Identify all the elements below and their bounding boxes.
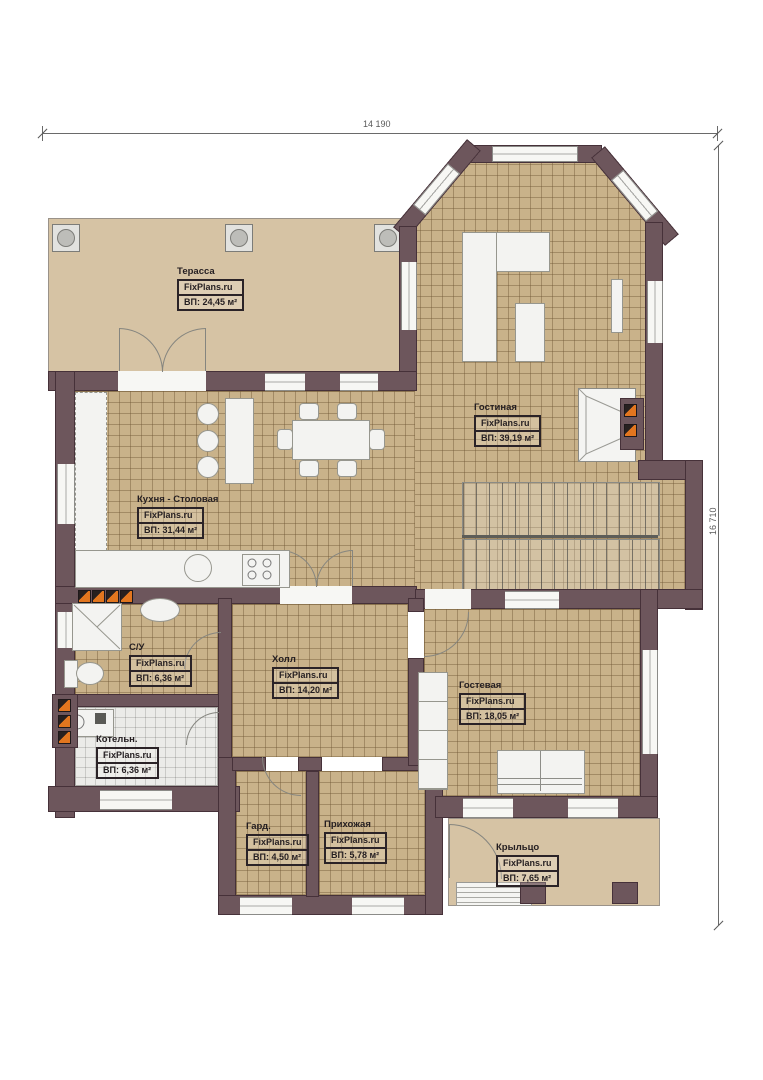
coffee-table	[515, 303, 545, 362]
door-opening	[280, 586, 352, 604]
chair	[369, 429, 385, 450]
room-area: ВП: 31,44 м²	[139, 524, 202, 537]
room-info-box: FixPlans.ru ВП: 31,44 м²	[137, 507, 204, 539]
wall	[60, 694, 232, 707]
window	[340, 373, 378, 391]
staircase-upper-run	[462, 482, 660, 536]
dimension-right-line	[718, 145, 719, 925]
column-icon	[379, 229, 397, 247]
bar-stool	[197, 456, 219, 478]
bed-line	[498, 778, 582, 779]
stove	[242, 554, 280, 586]
room-label-kitchen: Кухня - Столовая FixPlans.ru ВП: 31,44 м…	[137, 494, 218, 539]
room-info-box: FixPlans.ru ВП: 14,20 м²	[272, 667, 339, 699]
window	[647, 281, 663, 343]
room-label-bathroom: С/У FixPlans.ru ВП: 6,36 м²	[129, 642, 192, 687]
window	[642, 650, 658, 754]
staircase-lower-run	[462, 539, 660, 591]
wall	[408, 598, 424, 612]
terrace-column	[52, 224, 80, 252]
kitchen-island	[225, 398, 254, 484]
window	[240, 897, 292, 915]
room-brand: FixPlans.ru	[461, 695, 524, 710]
chair	[299, 403, 319, 420]
vent-marker-icon	[624, 424, 637, 437]
room-label-hall: Холл FixPlans.ru ВП: 14,20 м²	[272, 654, 339, 699]
room-info-box: FixPlans.ru ВП: 5,78 м²	[324, 832, 387, 864]
door-leaf	[449, 824, 450, 878]
chair	[337, 403, 357, 420]
room-brand: FixPlans.ru	[248, 836, 307, 851]
column-icon	[230, 229, 248, 247]
chair	[337, 460, 357, 477]
room-name: Крыльцо	[496, 842, 559, 853]
bed	[497, 750, 585, 794]
room-label-porch: Крыльцо FixPlans.ru ВП: 7,65 м²	[496, 842, 559, 887]
vent-marker-icon	[624, 404, 637, 417]
floor-plan-canvas: 14 190 16 710	[0, 0, 763, 1080]
room-area: ВП: 24,45 м²	[179, 296, 242, 309]
room-name: Гостиная	[474, 402, 541, 413]
wall	[232, 757, 266, 771]
bed-divider	[540, 751, 541, 791]
door-opening	[425, 589, 471, 609]
vent-marker-icon	[78, 590, 91, 603]
room-info-box: FixPlans.ru ВП: 39,19 м²	[474, 415, 541, 447]
window	[492, 146, 578, 162]
wall	[298, 757, 322, 771]
dimension-top-line	[42, 133, 718, 134]
wall	[685, 460, 703, 610]
porch-column	[612, 882, 638, 904]
bed-line	[498, 784, 582, 785]
door-leaf	[119, 328, 120, 371]
vent-marker-icon	[120, 590, 133, 603]
terrace-column	[225, 224, 253, 252]
toilet	[76, 662, 104, 685]
room-area: ВП: 18,05 м²	[461, 710, 524, 723]
wall	[645, 222, 663, 467]
shower-icon	[72, 603, 122, 651]
window	[568, 798, 618, 818]
bar-stool	[197, 403, 219, 425]
room-area: ВП: 5,78 м²	[326, 849, 385, 862]
room-brand: FixPlans.ru	[179, 281, 242, 296]
dining-table	[292, 420, 370, 460]
room-label-entry: Прихожая FixPlans.ru ВП: 5,78 м²	[324, 819, 387, 864]
window	[265, 373, 305, 391]
bathroom-sink	[140, 598, 180, 622]
room-info-box: FixPlans.ru ВП: 6,36 м²	[96, 747, 159, 779]
room-name: Кухня - Столовая	[137, 494, 218, 505]
room-info-box: FixPlans.ru ВП: 4,50 м²	[246, 834, 309, 866]
room-info-box: FixPlans.ru ВП: 18,05 м²	[459, 693, 526, 725]
room-area: ВП: 4,50 м²	[248, 851, 307, 864]
kitchen-counter	[75, 392, 107, 556]
shower	[72, 603, 122, 651]
room-label-living: Гостиная FixPlans.ru ВП: 39,19 м²	[474, 402, 541, 447]
vent-marker-icon	[92, 590, 105, 603]
room-brand: FixPlans.ru	[139, 509, 202, 524]
tv-console	[611, 279, 623, 333]
vent-marker-icon	[58, 715, 71, 728]
room-name: Прихожая	[324, 819, 387, 830]
room-brand: FixPlans.ru	[274, 669, 337, 684]
window	[401, 262, 417, 330]
vent-marker-icon	[58, 731, 71, 744]
sofa	[462, 232, 497, 362]
chair	[299, 460, 319, 477]
door-leaf	[205, 328, 206, 371]
room-info-box: FixPlans.ru ВП: 7,65 м²	[496, 855, 559, 887]
room-area: ВП: 6,36 м²	[131, 672, 190, 685]
room-name: Гостевая	[459, 680, 526, 691]
wall	[218, 757, 236, 915]
dimension-top-label: 14 190	[363, 119, 391, 129]
room-brand: FixPlans.ru	[498, 857, 557, 872]
room-name: Холл	[272, 654, 339, 665]
room-area: ВП: 14,20 м²	[274, 684, 337, 697]
window	[57, 464, 75, 524]
room-area: ВП: 39,19 м²	[476, 432, 539, 445]
room-brand: FixPlans.ru	[476, 417, 539, 432]
window	[352, 897, 404, 915]
door-opening	[118, 371, 206, 391]
room-area: ВП: 7,65 м²	[498, 872, 557, 885]
room-label-wardrobe: Гард. FixPlans.ru ВП: 4,50 м²	[246, 821, 309, 866]
kitchen-sink	[184, 554, 212, 582]
room-brand: FixPlans.ru	[326, 834, 385, 849]
dimension-right-label: 16 710	[708, 507, 718, 535]
room-label-terrace: Терасса FixPlans.ru ВП: 24,45 м²	[177, 266, 244, 311]
bar-stool	[197, 430, 219, 452]
room-name: Котельн.	[96, 734, 159, 745]
window	[100, 790, 172, 810]
column-icon	[57, 229, 75, 247]
room-label-boiler: Котельн. FixPlans.ru ВП: 6,36 м²	[96, 734, 159, 779]
window	[505, 591, 559, 609]
window	[463, 798, 513, 818]
staircase-divider	[462, 535, 658, 538]
room-name: С/У	[129, 642, 192, 653]
vent-marker-icon	[58, 699, 71, 712]
room-name: Гард.	[246, 821, 309, 832]
room-brand: FixPlans.ru	[131, 657, 190, 672]
wardrobe-cabinet	[418, 672, 448, 790]
stove-burners-icon	[243, 555, 277, 583]
chair	[277, 429, 293, 450]
room-label-guest: Гостевая FixPlans.ru ВП: 18,05 м²	[459, 680, 526, 725]
room-name: Терасса	[177, 266, 244, 277]
room-area: ВП: 6,36 м²	[98, 764, 157, 777]
wall	[468, 145, 602, 163]
door-leaf	[352, 550, 353, 586]
room-brand: FixPlans.ru	[98, 749, 157, 764]
room-info-box: FixPlans.ru ВП: 24,45 м²	[177, 279, 244, 311]
room-info-box: FixPlans.ru ВП: 6,36 м²	[129, 655, 192, 687]
vent-marker-icon	[106, 590, 119, 603]
